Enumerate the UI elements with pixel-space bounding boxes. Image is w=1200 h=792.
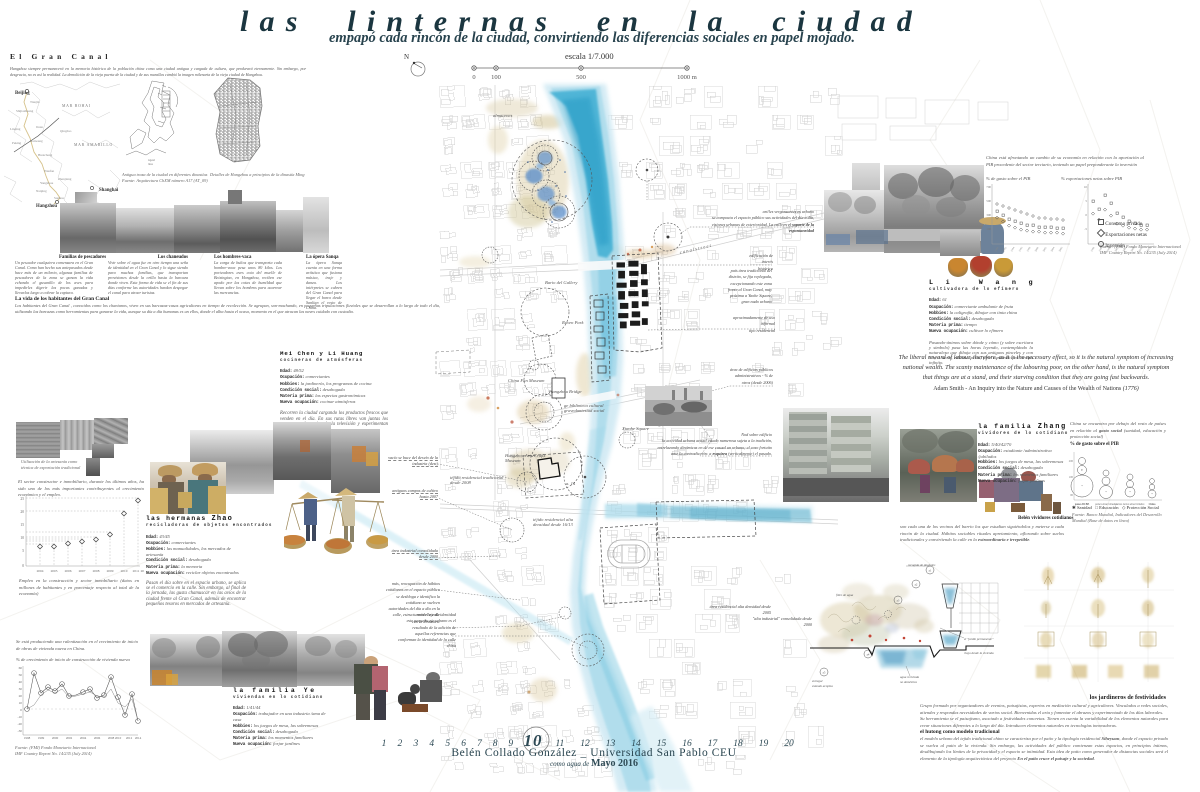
svg-text:2005: 2005 — [51, 569, 58, 573]
svg-text:40: 40 — [19, 680, 23, 684]
svg-text:2002: 2002 — [1042, 246, 1048, 253]
svg-text:el "jardín permanente": el "jardín permanente" — [964, 637, 994, 641]
svg-text:0: 0 — [20, 708, 22, 712]
svg-text:Zhenjiang: Zhenjiang — [58, 177, 72, 181]
svg-text:recogida de pluviales: recogida de pluviales — [908, 563, 936, 567]
svg-text:a1: a1 — [929, 569, 932, 573]
svg-text:densidad desde 16/13: densidad desde 16/13 — [533, 522, 574, 527]
svg-text:1999: 1999 — [38, 736, 45, 740]
svg-text:a2: a2 — [915, 583, 918, 587]
svg-text:Shanghai: Shanghai — [99, 188, 119, 193]
svg-text:a5: a5 — [823, 671, 826, 675]
svg-text:2000: 2000 — [1034, 246, 1040, 253]
svg-text:1998: 1998 — [24, 736, 31, 740]
svg-text:2006: 2006 — [1058, 246, 1064, 253]
svg-text:700: 700 — [986, 185, 991, 189]
svg-text:2010: 2010 — [115, 736, 122, 740]
svg-text:*: * — [1151, 493, 1153, 496]
svg-text:2002: 2002 — [66, 736, 73, 740]
svg-text:2004: 2004 — [1050, 246, 1056, 253]
svg-text:*: * — [1081, 485, 1083, 488]
svg-text:Jinan: Jinan — [36, 125, 43, 129]
svg-text:2008: 2008 — [108, 736, 115, 740]
svg-text:10: 10 — [20, 536, 24, 540]
svg-text:estando acoplea: estando acoplea — [812, 684, 833, 688]
svg-text:100: 100 — [1069, 476, 1074, 479]
svg-text:1996: 1996 — [1018, 246, 1024, 253]
svg-text:15: 15 — [20, 523, 24, 527]
svg-text:filtro de agua: filtro de agua — [836, 593, 854, 597]
svg-text:Roven Park: Roven Park — [561, 320, 585, 325]
svg-text:Qingdao: Qingdao — [60, 129, 72, 133]
svg-text:10: 10 — [19, 701, 23, 705]
svg-text:500: 500 — [986, 199, 991, 203]
svg-text:legend: legend — [148, 159, 156, 162]
svg-text:2011: 2011 — [133, 569, 140, 573]
svg-text:300: 300 — [986, 213, 991, 217]
svg-text:1994: 1994 — [1010, 246, 1016, 253]
svg-text:a4: a4 — [867, 653, 870, 657]
svg-text:Huaichang: Huaichang — [38, 153, 53, 157]
svg-text:2004: 2004 — [80, 736, 87, 740]
svg-text:Tianjin: Tianjin — [30, 100, 40, 104]
svg-text:5: 5 — [22, 549, 24, 553]
svg-text:-5: -5 — [1084, 227, 1087, 231]
svg-text:2007: 2007 — [79, 569, 86, 573]
svg-text:a. 14: a. 14 — [566, 481, 576, 486]
svg-text:0: 0 — [1085, 213, 1087, 217]
svg-text:-10: -10 — [17, 715, 22, 719]
svg-text:entregar: entregar — [812, 679, 824, 683]
svg-text:Hangzhou: Hangzhou — [36, 204, 57, 209]
svg-text:*: * — [1105, 491, 1107, 494]
svg-text:1998: 1998 — [1026, 246, 1032, 253]
svg-text:desde 2008: desde 2008 — [450, 480, 471, 485]
svg-text:Yangzhou: Yangzhou — [40, 181, 54, 185]
svg-text:2008: 2008 — [93, 569, 100, 573]
svg-text:00: 00 — [1070, 494, 1073, 497]
svg-text:Linqing: Linqing — [10, 127, 21, 131]
svg-text:Bario del Gallery: Bario del Gallery — [545, 280, 578, 285]
svg-text:Nanjing: Nanjing — [36, 189, 47, 193]
svg-text:a3: a3 — [897, 599, 900, 603]
svg-text:200: 200 — [1069, 460, 1074, 463]
svg-text:50: 50 — [19, 673, 23, 677]
svg-text:China Fan Museum: China Fan Museum — [508, 378, 545, 383]
svg-text:riego desde la vivienda: riego desde la vivienda — [964, 651, 994, 655]
svg-text:2004: 2004 — [37, 569, 44, 573]
svg-text:Xiaohe Square: Xiaohe Square — [621, 426, 649, 431]
svg-text:Wanfan: Wanfan — [44, 169, 55, 173]
svg-text:*: * — [1129, 491, 1131, 494]
svg-text:1990: 1990 — [1090, 246, 1096, 253]
svg-text:-30: -30 — [17, 729, 22, 733]
svg-text:2012: 2012 — [126, 736, 133, 740]
svg-text:10: 10 — [1084, 185, 1088, 189]
svg-text:100: 100 — [986, 227, 991, 231]
svg-text:Suzhou: Suzhou — [54, 196, 64, 200]
svg-text:no doméstica: no doméstica — [900, 680, 917, 684]
svg-text:2009: 2009 — [107, 569, 114, 573]
svg-text:2014: 2014 — [135, 736, 142, 740]
svg-text:25: 25 — [20, 497, 24, 501]
svg-text:lines: lines — [148, 163, 153, 166]
svg-text:20: 20 — [19, 694, 23, 698]
svg-text:Museum: Museum — [504, 458, 521, 463]
svg-text:2006: 2006 — [65, 569, 72, 573]
svg-text:E: E — [1081, 469, 1083, 472]
svg-text:2000: 2000 — [52, 736, 59, 740]
svg-text:1992: 1992 — [1002, 246, 1008, 253]
svg-text:MAR AMARILLO: MAR AMARILLO — [74, 143, 113, 147]
svg-text:Peking: Peking — [12, 141, 22, 145]
svg-text:Nanwang: Nanwang — [30, 139, 43, 143]
svg-text:60: 60 — [19, 666, 23, 670]
svg-text:Shijiazhuang: Shijiazhuang — [16, 109, 34, 113]
svg-text:0: 0 — [22, 564, 24, 568]
svg-text:2006: 2006 — [94, 736, 101, 740]
svg-text:30: 30 — [19, 687, 23, 691]
svg-text:2012: 2012 — [141, 569, 144, 573]
svg-text:Hangzhou Bridge: Hangzhou Bridge — [548, 389, 582, 394]
svg-text:-20: -20 — [17, 722, 22, 726]
svg-text:MAR BOHAI: MAR BOHAI — [62, 104, 91, 108]
svg-text:gravedantestad social: gravedantestad social — [564, 408, 605, 413]
svg-text:1990: 1990 — [994, 246, 1000, 253]
svg-text:20: 20 — [20, 510, 24, 514]
svg-text:almacenes: almacenes — [493, 113, 513, 118]
svg-text:5: 5 — [1085, 199, 1087, 203]
svg-text:2010: 2010 — [121, 569, 128, 573]
